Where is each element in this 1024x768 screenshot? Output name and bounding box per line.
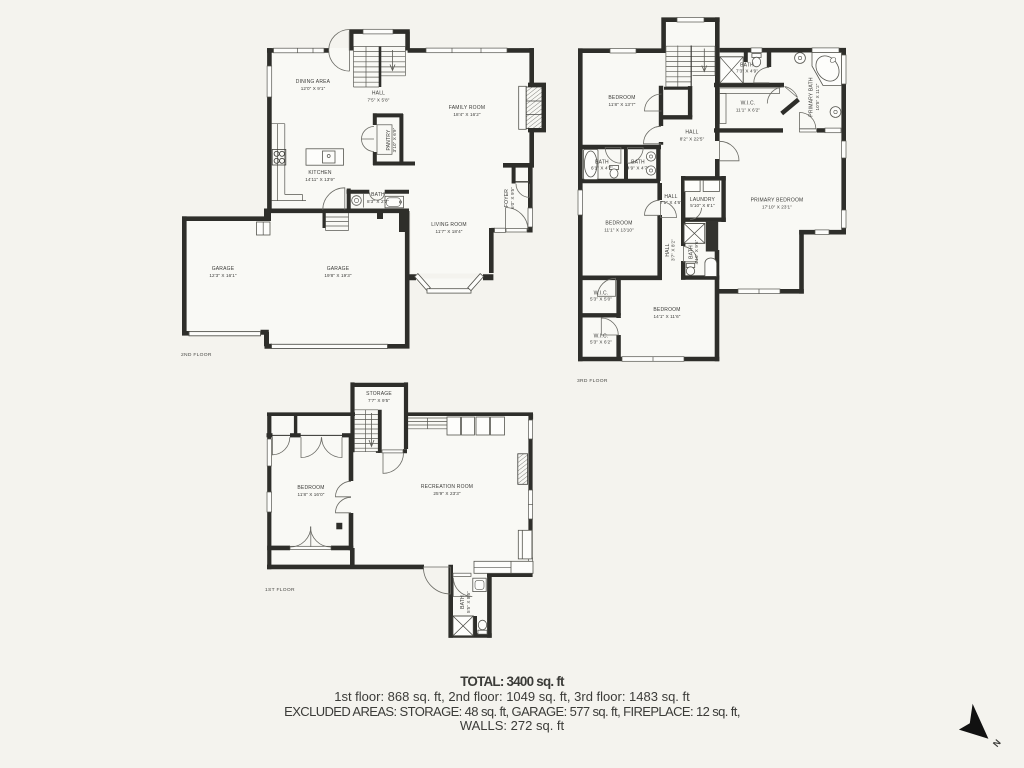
svg-text:5'5" X 8'5": 5'5" X 8'5" xyxy=(466,591,471,613)
svg-text:HALL: HALL xyxy=(685,130,698,136)
svg-text:DINING AREA: DINING AREA xyxy=(296,79,331,85)
svg-text:11'8" X 13'7": 11'8" X 13'7" xyxy=(609,102,636,107)
svg-text:7'1" X 4'6": 7'1" X 4'6" xyxy=(660,200,682,205)
svg-text:14'1" X 11'6": 14'1" X 11'6" xyxy=(654,314,681,319)
svg-text:EXCLUDED AREAS: STORAGE: 48 sq: EXCLUDED AREAS: STORAGE: 48 sq. ft, GARA… xyxy=(284,704,740,719)
svg-text:LIVING ROOM: LIVING ROOM xyxy=(431,222,467,228)
svg-text:3RD FLOOR: 3RD FLOOR xyxy=(577,378,608,384)
svg-text:6'1" X 4'7": 6'1" X 4'7" xyxy=(591,166,613,171)
svg-text:WALLS: 272 sq. ft: WALLS: 272 sq. ft xyxy=(460,718,565,733)
svg-text:11'8" X 16'0": 11'8" X 16'0" xyxy=(298,492,325,497)
svg-text:12'0" X 9'1": 12'0" X 9'1" xyxy=(301,86,326,91)
svg-text:18'4" X 16'2": 18'4" X 16'2" xyxy=(453,112,481,117)
svg-text:8'2" X 22'5": 8'2" X 22'5" xyxy=(680,137,705,142)
svg-text:7'7" X 9'5": 7'7" X 9'5" xyxy=(368,398,390,403)
svg-text:19'8" X 19'3": 19'8" X 19'3" xyxy=(324,273,352,278)
svg-text:11'1" X 6'2": 11'1" X 6'2" xyxy=(736,108,761,113)
svg-text:7'3" X 4'9": 7'3" X 4'9" xyxy=(736,69,758,74)
svg-text:5'3" X 5'0": 5'3" X 5'0" xyxy=(590,297,612,302)
svg-text:17'10" X 23'1": 17'10" X 23'1" xyxy=(762,205,792,210)
svg-text:STORAGE: STORAGE xyxy=(366,391,392,397)
svg-text:W.I.C.: W.I.C. xyxy=(741,101,756,107)
svg-text:2ND FLOOR: 2ND FLOOR xyxy=(181,352,212,358)
svg-text:7'5" X 5'8": 7'5" X 5'8" xyxy=(368,98,390,103)
svg-text:11'7" X 18'4": 11'7" X 18'4" xyxy=(436,229,463,234)
svg-text:4'10" X 9'6": 4'10" X 9'6" xyxy=(694,239,699,264)
svg-text:6'0" X 9'5": 6'0" X 9'5" xyxy=(510,187,515,209)
svg-text:1st floor: 868 sq. ft, 2nd flo: 1st floor: 868 sq. ft, 2nd floor: 1049 s… xyxy=(334,689,690,704)
svg-text:BEDROOM: BEDROOM xyxy=(608,95,635,101)
svg-text:12'3" X 16'1": 12'3" X 16'1" xyxy=(209,273,237,278)
svg-text:1ST FLOOR: 1ST FLOOR xyxy=(265,587,295,593)
svg-text:14'11" X 13'9": 14'11" X 13'9" xyxy=(305,177,335,182)
svg-text:10'5" X 11'2": 10'5" X 11'2" xyxy=(815,83,820,110)
svg-text:GARAGE: GARAGE xyxy=(327,266,350,272)
svg-text:3'10" X 6'9": 3'10" X 6'9" xyxy=(392,127,397,152)
svg-text:BATH: BATH xyxy=(371,192,385,198)
svg-text:8'3" X 2'7": 8'3" X 2'7" xyxy=(367,199,389,204)
svg-text:BEDROOM: BEDROOM xyxy=(297,485,324,491)
svg-text:BEDROOM: BEDROOM xyxy=(653,307,680,313)
svg-text:HALL: HALL xyxy=(372,91,385,97)
svg-text:3'7" X 8'2": 3'7" X 8'2" xyxy=(671,239,676,261)
svg-text:5'3" X 6'2": 5'3" X 6'2" xyxy=(590,340,612,345)
svg-text:PRIMARY BEDROOM: PRIMARY BEDROOM xyxy=(751,198,804,204)
svg-text:FAMILY ROOM: FAMILY ROOM xyxy=(449,105,485,111)
svg-text:RECREATION ROOM: RECREATION ROOM xyxy=(421,484,473,490)
svg-text:4'9" X 4'7": 4'9" X 4'7" xyxy=(627,166,649,171)
svg-text:TOTAL: 3400 sq. ft: TOTAL: 3400 sq. ft xyxy=(460,674,565,689)
svg-text:11'1" X 13'10": 11'1" X 13'10" xyxy=(604,228,634,233)
svg-text:KITCHEN: KITCHEN xyxy=(308,170,332,176)
svg-text:BEDROOM: BEDROOM xyxy=(605,221,632,227)
svg-text:25'9" X 23'3": 25'9" X 23'3" xyxy=(433,491,461,496)
svg-text:GARAGE: GARAGE xyxy=(212,266,235,272)
svg-text:5'10" X 6'1": 5'10" X 6'1" xyxy=(690,203,715,208)
svg-text:PRIMARY BATH: PRIMARY BATH xyxy=(809,77,815,117)
